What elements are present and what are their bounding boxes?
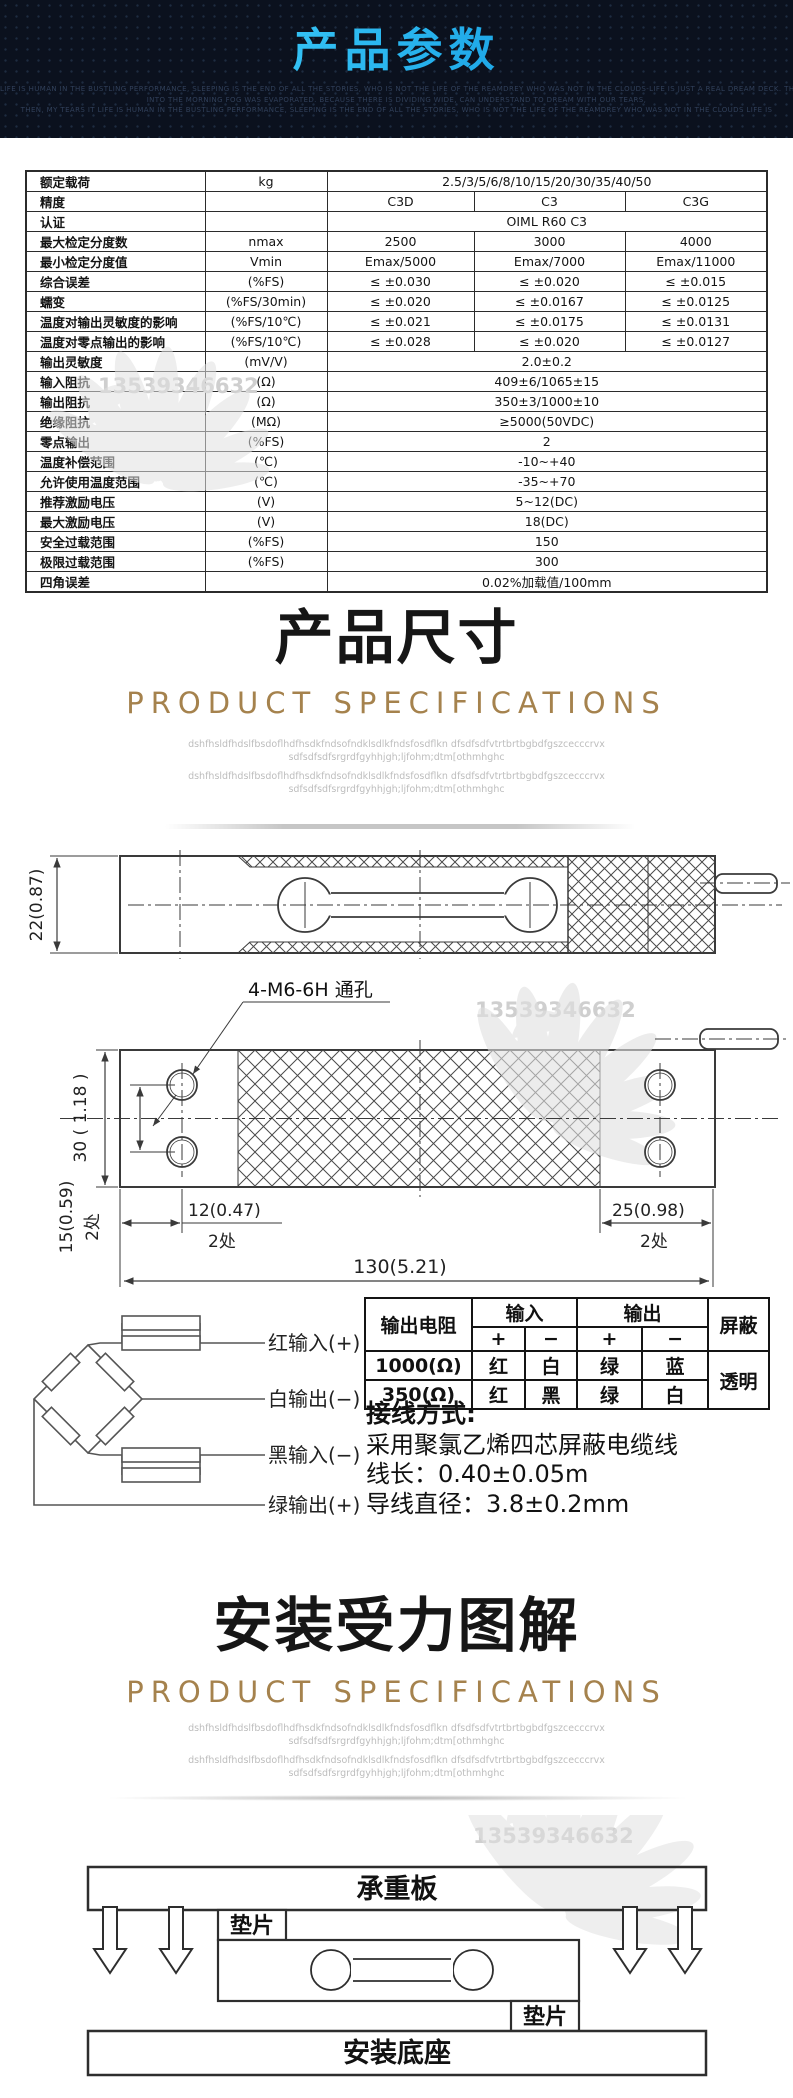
spec-value: 2500 xyxy=(327,232,474,252)
spec-value: 350±3/1000±10 xyxy=(327,392,767,412)
spec-value: ≤ ±0.028 xyxy=(327,332,474,352)
spec-value: ≤ ±0.020 xyxy=(327,292,474,312)
table-row: 认证OIML R60 C3 xyxy=(26,212,767,232)
header-caption-line: LIFE IS HUMAN IN THE BUSTLING PERFORMANC… xyxy=(0,85,793,93)
polarity: + xyxy=(472,1327,525,1351)
spec-unit xyxy=(205,192,327,212)
drop-shadow xyxy=(165,824,635,829)
drawing-top-view: 13539346632 4-M6-6H 通孔 30 xyxy=(0,965,793,1305)
filler-line: dshfhsldfhdslfbsdoflhdfhsdkfndsofndklsdl… xyxy=(188,1723,605,1734)
filler-text: dshfhsldfhdslfbsdoflhdfhsdkfndsofndklsdl… xyxy=(0,770,793,796)
wire-color: 红 xyxy=(472,1351,525,1380)
table-row: 精度C3DC3C3G xyxy=(26,192,767,212)
section-divider xyxy=(110,1795,685,1801)
spec-label: 允许使用温度范围 xyxy=(26,472,205,492)
dim-label: 22(0.87) xyxy=(27,869,47,942)
dim-label: 15(0.59) xyxy=(57,1181,77,1254)
spec-unit: (%FS/30min) xyxy=(205,292,327,312)
loadcell-install xyxy=(218,1940,579,2001)
dim-height-22: 22(0.87) xyxy=(27,856,118,953)
diagram-watermark: 13539346632 xyxy=(453,1815,702,1952)
bridge-label-red-input: 红输入(+) xyxy=(268,1331,360,1355)
spec-value: ≤ ±0.020 xyxy=(474,272,625,292)
filler-line: dshfhsldfhdslfbsdoflhdfhsdkfndsofndklsdl… xyxy=(188,739,605,750)
table-row: 输出阻抗(Ω)350±3/1000±10 xyxy=(26,392,767,412)
table-row: 输入阻抗(Ω)409±6/1065±15 xyxy=(26,372,767,392)
spec-value: 2.5/3/5/6/8/10/15/20/30/35/40/50 xyxy=(327,171,767,192)
spec-unit: (%FS/10℃) xyxy=(205,312,327,332)
spec-value: C3D xyxy=(327,192,474,212)
spec-label: 输入阻抗 xyxy=(26,372,205,392)
table-row: 零点输出(%FS)2 xyxy=(26,432,767,452)
product-page: 产品参数 LIFE IS HUMAN IN THE BUSTLING PERFO… xyxy=(0,0,793,2098)
table-row: 输出灵敏度(mV/V)2.0±0.2 xyxy=(26,352,767,372)
table-row: 1000(Ω) 红 白 绿 蓝 透明 xyxy=(365,1351,769,1380)
section-title-bold: 图解 xyxy=(458,1591,580,1660)
section-title-normal: 产品 xyxy=(274,603,396,672)
top-plate-label: 承重板 xyxy=(357,1874,438,1905)
installation-diagram: 13539346632 承重板 垫片 垫片 安装底座 xyxy=(0,1815,793,2098)
polarity: + xyxy=(577,1327,642,1351)
table-row: 温度补偿范围(℃)-10~+40 xyxy=(26,452,767,472)
spec-value: ≤ ±0.0131 xyxy=(625,312,767,332)
table-row: 蠕变(%FS/30min)≤ ±0.020≤ ±0.0167≤ ±0.0125 xyxy=(26,292,767,312)
header-banner: 产品参数 LIFE IS HUMAN IN THE BUSTLING PERFO… xyxy=(0,0,793,138)
section-subtitle: PRODUCT SPECIFICATIONS xyxy=(0,686,793,720)
wire-color: 白 xyxy=(642,1380,708,1409)
dim-label: 30 ( 1.18 ) xyxy=(71,1074,91,1163)
wire-color: 黑 xyxy=(525,1380,577,1409)
spec-label: 温度对输出灵敏度的影响 xyxy=(26,312,205,332)
spec-label: 极限过载范围 xyxy=(26,552,205,572)
table-row: 推荐激励电压(V)5~12(DC) xyxy=(26,492,767,512)
wire-header-resistance: 输出电阻 xyxy=(365,1298,472,1351)
bridge-label-white-output: 白输出(−) xyxy=(268,1387,360,1411)
filler-line: dshfhsldfhdslfbsdoflhdfhsdkfndsofndklsdl… xyxy=(188,1755,605,1766)
spec-label: 推荐激励电压 xyxy=(26,492,205,512)
spec-value: 300 xyxy=(327,552,767,572)
spec-value: 150 xyxy=(327,532,767,552)
section-title-dimensions: 产品尺寸 xyxy=(0,608,793,667)
dim-label: 12(0.47) xyxy=(188,1201,261,1221)
wire-header-input: 输入 xyxy=(472,1298,577,1327)
polarity: − xyxy=(525,1327,577,1351)
spec-value: 4000 xyxy=(625,232,767,252)
filler-line: sdfsdfsdfsrgrdfgyhhjgh;ljfohm;dtm[othmhg… xyxy=(288,784,504,795)
table-row: 绝缘阻抗(MΩ)≥5000(50VDC) xyxy=(26,412,767,432)
table-row: 额定载荷kg2.5/3/5/6/8/10/15/20/30/35/40/50 xyxy=(26,171,767,192)
bridge-label-green-output: 绿输出(+) xyxy=(268,1493,360,1517)
spec-value: C3 xyxy=(474,192,625,212)
wire-resistance: 1000(Ω) xyxy=(365,1351,472,1380)
filler-line: sdfsdfsdfsrgrdfgyhhjgh;ljfohm;dtm[othmhg… xyxy=(288,1736,504,1747)
spec-value: ≥5000(50VDC) xyxy=(327,412,767,432)
spec-label: 安全过载范围 xyxy=(26,532,205,552)
wire-header-output: 输出 xyxy=(577,1298,708,1327)
polarity: − xyxy=(642,1327,708,1351)
spec-value: ≤ ±0.021 xyxy=(327,312,474,332)
spec-label: 输出阻抗 xyxy=(26,392,205,412)
spec-value: Emax/7000 xyxy=(474,252,625,272)
spec-value: Emax/5000 xyxy=(327,252,474,272)
places-label: 2处 xyxy=(83,1213,103,1241)
spec-label: 温度补偿范围 xyxy=(26,452,205,472)
spec-label: 认证 xyxy=(26,212,205,232)
spec-unit xyxy=(205,212,327,232)
spec-unit: Vmin xyxy=(205,252,327,272)
spec-label: 零点输出 xyxy=(26,432,205,452)
spec-value: C3G xyxy=(625,192,767,212)
spec-label: 额定载荷 xyxy=(26,171,205,192)
filler-text: dshfhsldfhdslfbsdoflhdfhsdkfndsofndklsdl… xyxy=(0,738,793,764)
spec-value: OIML R60 C3 xyxy=(327,212,767,232)
filler-line: sdfsdfsdfsrgrdfgyhhjgh;ljfohm;dtm[othmhg… xyxy=(288,752,504,763)
table-row: 温度对零点输出的影响(%FS/10℃)≤ ±0.028≤ ±0.020≤ ±0.… xyxy=(26,332,767,352)
spec-table: 额定载荷kg2.5/3/5/6/8/10/15/20/30/35/40/50 精… xyxy=(25,170,768,593)
spec-unit: (℃) xyxy=(205,452,327,472)
spec-value: 5~12(DC) xyxy=(327,492,767,512)
spec-value: 0.02%加载值/100mm xyxy=(327,572,767,593)
spec-value: 18(DC) xyxy=(327,512,767,532)
spec-value: Emax/11000 xyxy=(625,252,767,272)
wire-color: 蓝 xyxy=(642,1351,708,1380)
spec-unit: (%FS) xyxy=(205,272,327,292)
section-subtitle: PRODUCT SPECIFICATIONS xyxy=(0,1675,793,1709)
spec-value: ≤ ±0.0175 xyxy=(474,312,625,332)
table-row: 输出电阻 输入 输出 屏蔽 xyxy=(365,1298,769,1327)
places-label: 2处 xyxy=(640,1232,668,1252)
spec-value: 3000 xyxy=(474,232,625,252)
spec-value: ≤ ±0.030 xyxy=(327,272,474,292)
dim-label: 25(0.98) xyxy=(612,1201,685,1221)
spacer-right-label: 垫片 xyxy=(523,2004,567,2030)
wire-color: 白 xyxy=(525,1351,577,1380)
filler-text: dshfhsldfhdslfbsdoflhdfhsdkfndsofndklsdl… xyxy=(0,1754,793,1780)
spec-unit xyxy=(205,572,327,593)
wire-color: 红 xyxy=(472,1380,525,1409)
down-arrow-icon xyxy=(94,1907,126,1973)
header-caption-line: THEN, MY TEARS IT LIFE IS HUMAN IN THE B… xyxy=(0,106,793,114)
spec-unit: kg xyxy=(205,171,327,192)
spec-unit: (Ω) xyxy=(205,392,327,412)
spec-label: 四角误差 xyxy=(26,572,205,593)
table-row: 最小检定分度值VminEmax/5000Emax/7000Emax/11000 xyxy=(26,252,767,272)
spec-unit: (%FS/10℃) xyxy=(205,332,327,352)
table-row: 极限过载范围(%FS)300 xyxy=(26,552,767,572)
spec-unit: (V) xyxy=(205,512,327,532)
filler-text: dshfhsldfhdslfbsdoflhdfhsdkfndsofndklsdl… xyxy=(0,1722,793,1748)
spec-unit: (%FS) xyxy=(205,432,327,452)
spec-value: -10~+40 xyxy=(327,452,767,472)
table-row: 最大检定分度数nmax250030004000 xyxy=(26,232,767,252)
page-title: 产品参数 xyxy=(0,14,793,80)
spacer-left-label: 垫片 xyxy=(230,1913,274,1939)
filler-line: sdfsdfsdfsrgrdfgyhhjgh;ljfohm;dtm[othmhg… xyxy=(288,1768,504,1779)
section-title-normal: 安装受力 xyxy=(213,1591,457,1660)
wire-color: 绿 xyxy=(577,1351,642,1380)
wire-diameter: 导线直径：3.8±0.2mm xyxy=(366,1484,629,1519)
bridge-circuit: 红输入(+) 白输出(−) 黑输入(−) 绿输出(+) xyxy=(0,1290,370,1560)
spec-value: ≤ ±0.015 xyxy=(625,272,767,292)
spec-label: 蠕变 xyxy=(26,292,205,312)
spec-label: 输出灵敏度 xyxy=(26,352,205,372)
spec-label: 精度 xyxy=(26,192,205,212)
spec-unit: nmax xyxy=(205,232,327,252)
spec-unit: (℃) xyxy=(205,472,327,492)
header-caption-line: INTO THE MORNING FOG WAS EVAPORATED. BEC… xyxy=(0,96,793,104)
spec-value: ≤ ±0.0127 xyxy=(625,332,767,352)
wire-header-shield: 屏蔽 xyxy=(708,1298,769,1351)
spec-label: 最大激励电压 xyxy=(26,512,205,532)
table-row: 安全过载范围(%FS)150 xyxy=(26,532,767,552)
spec-unit: (mV/V) xyxy=(205,352,327,372)
spec-unit: (MΩ) xyxy=(205,412,327,432)
spec-value: ≤ ±0.020 xyxy=(474,332,625,352)
spec-value: 2 xyxy=(327,432,767,452)
table-row: 最大激励电压(V)18(DC) xyxy=(26,512,767,532)
table-row: 允许使用温度范围(℃)-35~+70 xyxy=(26,472,767,492)
table-row: 综合误差(%FS)≤ ±0.030≤ ±0.020≤ ±0.015 xyxy=(26,272,767,292)
base-plate-label: 安装底座 xyxy=(343,2037,451,2069)
table-row: 四角误差0.02%加载值/100mm xyxy=(26,572,767,593)
spec-value: 2.0±0.2 xyxy=(327,352,767,372)
spec-label: 最小检定分度值 xyxy=(26,252,205,272)
filler-line: dshfhsldfhdslfbsdoflhdfhsdkfndsofndklsdl… xyxy=(188,771,605,782)
drawing-side-view: 22(0.87) xyxy=(0,810,793,962)
spec-label: 最大检定分度数 xyxy=(26,232,205,252)
bridge-label-black-input: 黑输入(−) xyxy=(268,1443,360,1467)
spec-unit: (%FS) xyxy=(205,532,327,552)
section-title-bold: 尺寸 xyxy=(397,603,519,672)
places-label: 2处 xyxy=(208,1232,236,1252)
spec-value: ≤ ±0.0167 xyxy=(474,292,625,312)
spec-unit: (Ω) xyxy=(205,372,327,392)
dim-label: 130(5.21) xyxy=(353,1256,446,1278)
spec-value: -35~+70 xyxy=(327,472,767,492)
spec-unit: (V) xyxy=(205,492,327,512)
dim-bottom: 12(0.47) 2处 25(0.98) 2处 130(5.21) xyxy=(120,1189,713,1287)
spec-label: 绝缘阻抗 xyxy=(26,412,205,432)
section-title-install: 安装受力图解 xyxy=(0,1596,793,1655)
spec-value: ≤ ±0.0125 xyxy=(625,292,767,312)
down-arrow-icon xyxy=(160,1907,192,1973)
spec-label: 温度对零点输出的影响 xyxy=(26,332,205,352)
hole-label: 4-M6-6H 通孔 xyxy=(248,979,373,1001)
spec-label: 综合误差 xyxy=(26,272,205,292)
table-row: 温度对输出灵敏度的影响(%FS/10℃)≤ ±0.021≤ ±0.0175≤ ±… xyxy=(26,312,767,332)
wire-color: 绿 xyxy=(577,1380,642,1409)
spec-value: 409±6/1065±15 xyxy=(327,372,767,392)
wire-shield-value: 透明 xyxy=(708,1351,769,1409)
spec-unit: (%FS) xyxy=(205,552,327,572)
